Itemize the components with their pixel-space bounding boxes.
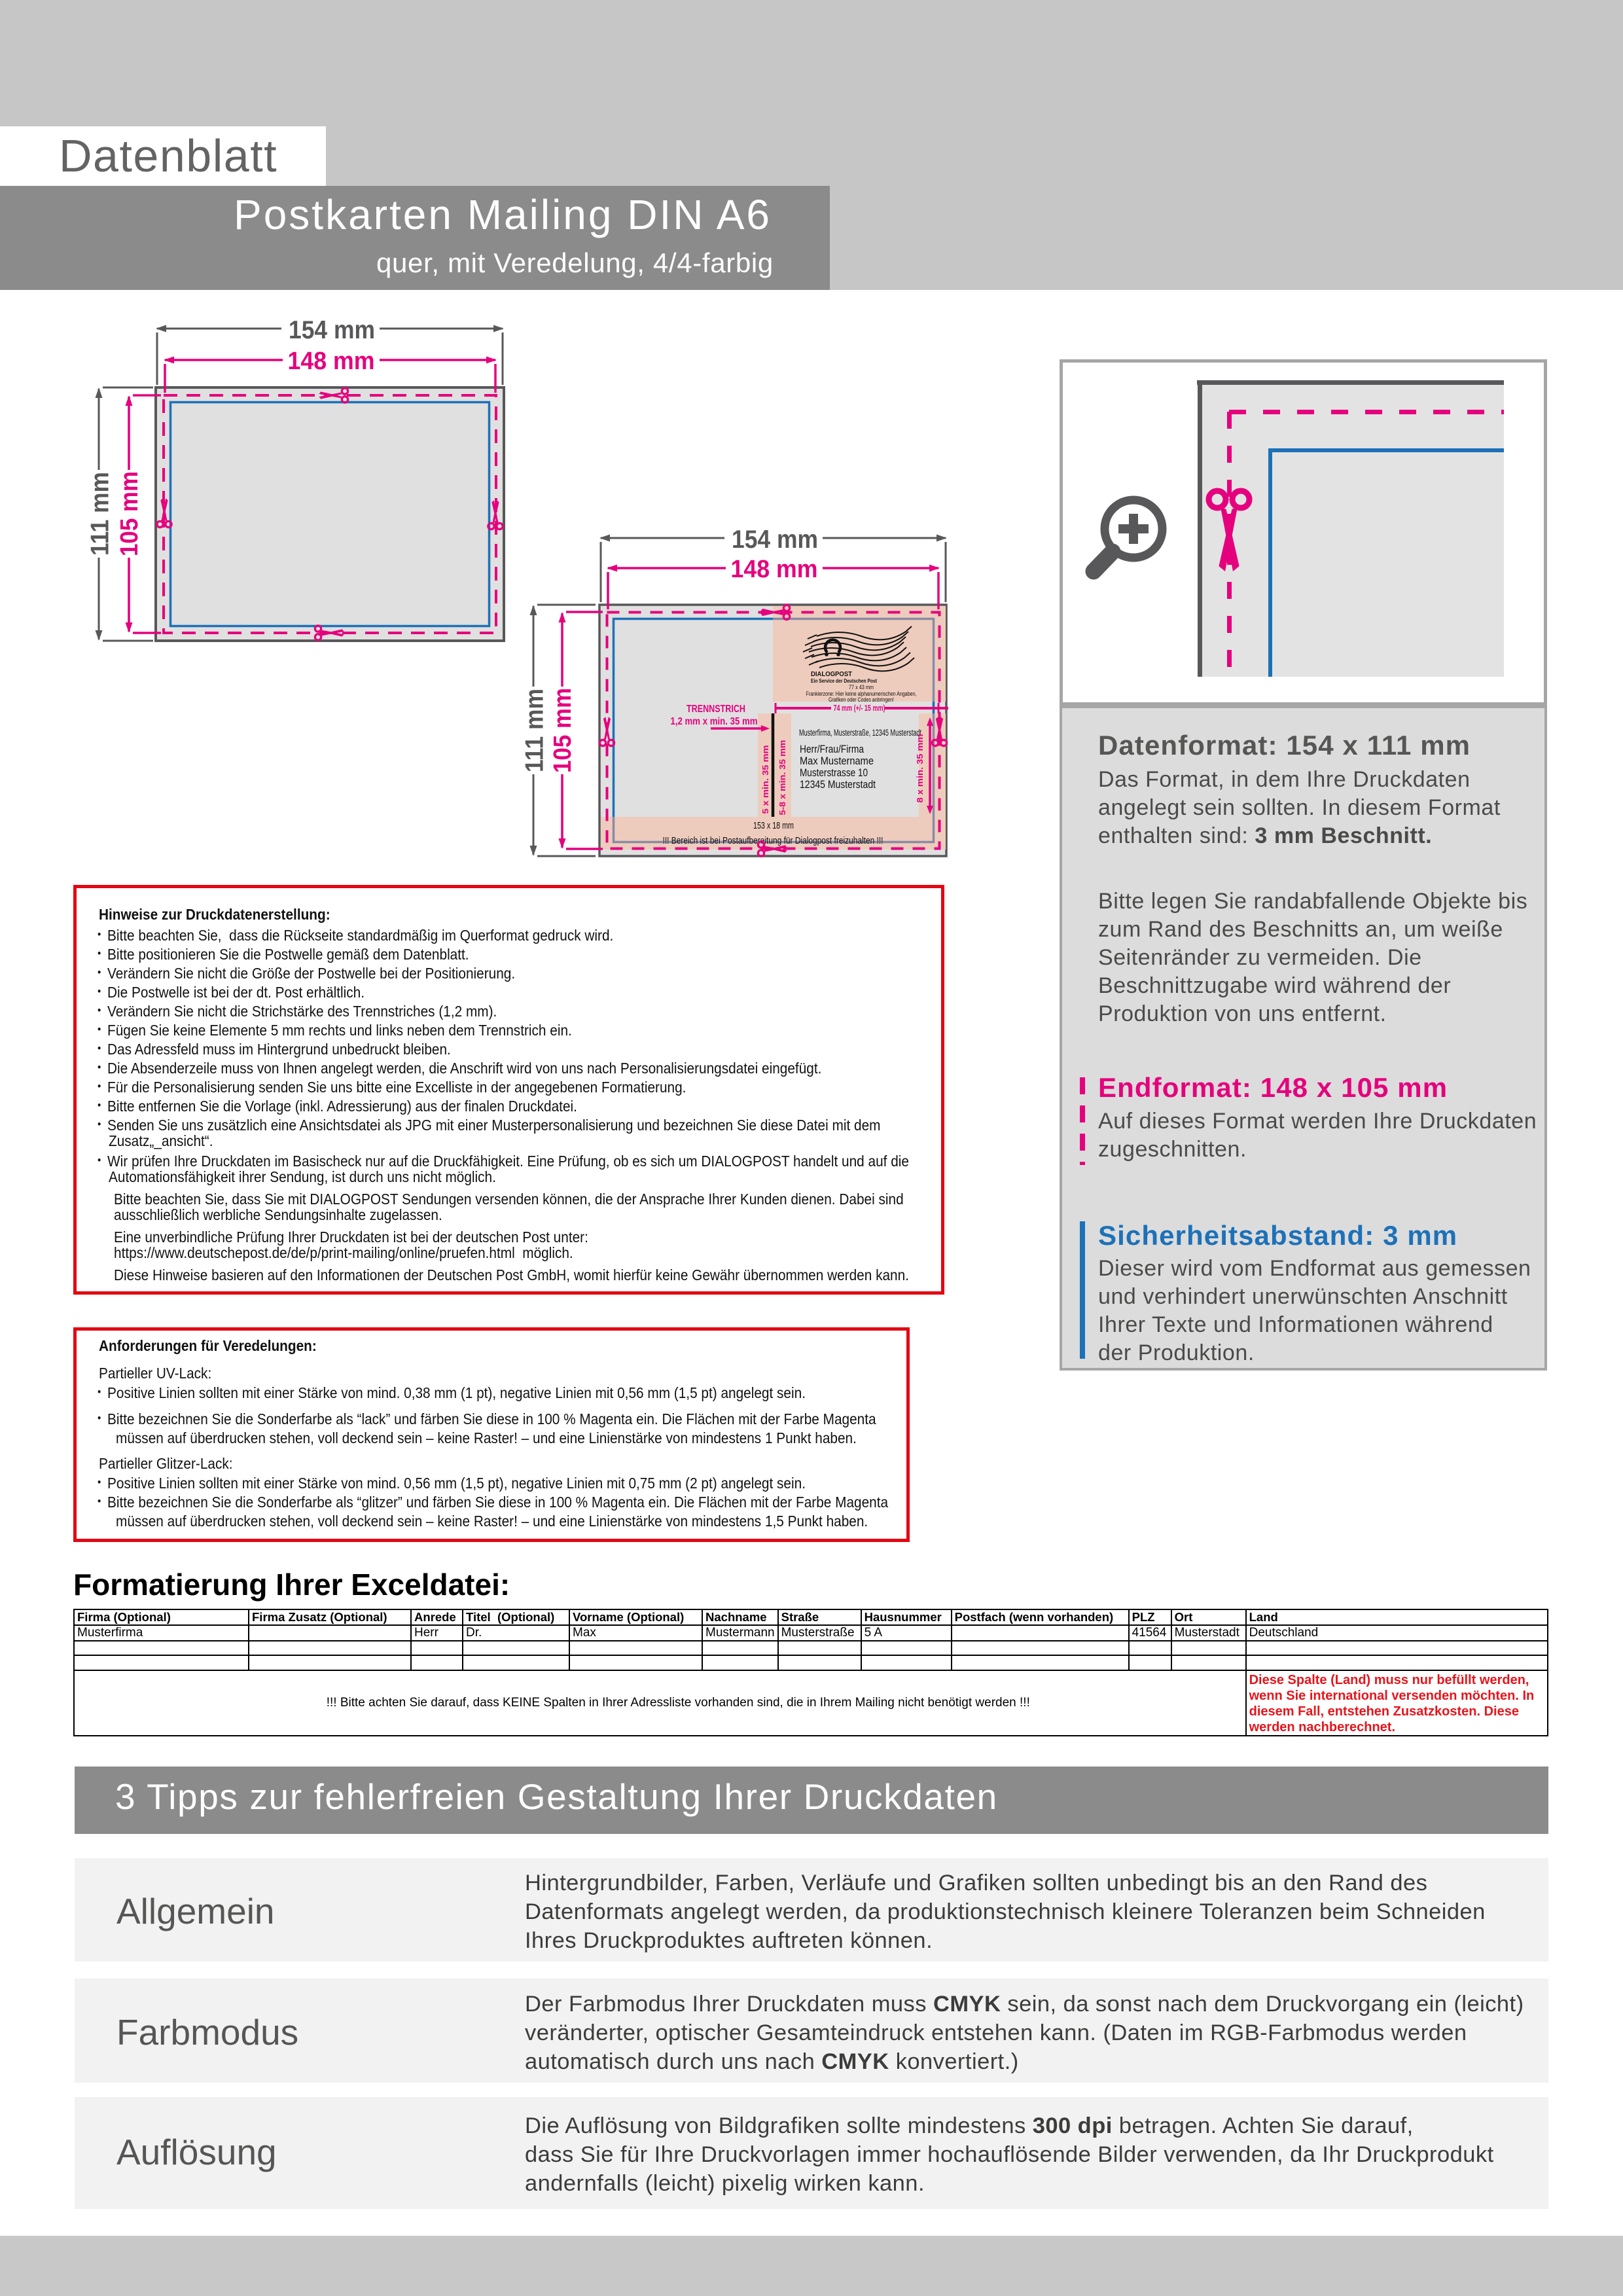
svg-text:74 mm (+/- 15 mm): 74 mm (+/- 15 mm) <box>834 704 885 713</box>
svg-text:!!! Bereich ist bei Postaufber: !!! Bereich ist bei Postaufbereitung für… <box>663 836 883 846</box>
svg-text:Musterfirma, Musterstraße, 123: Musterfirma, Musterstraße, 12345 Musters… <box>799 728 921 738</box>
svg-text:1,2 mm x min. 35 mm: 1,2 mm x min. 35 mm <box>671 716 758 727</box>
svg-text:Ein Service der Deutschen Post: Ein Service der Deutschen Post <box>811 677 877 684</box>
svg-text:148 mm: 148 mm <box>731 556 818 583</box>
svg-text:Max Mustername: Max Mustername <box>800 755 874 767</box>
svg-text:154 mm: 154 mm <box>732 526 818 554</box>
svg-text:8 x min. 35 mm: 8 x min. 35 mm <box>916 734 925 803</box>
svg-text:105 mm: 105 mm <box>116 471 143 556</box>
svg-text:111 mm: 111 mm <box>86 472 115 556</box>
svg-text:5-8 x min. 35 mm: 5-8 x min. 35 mm <box>778 740 787 816</box>
svg-text:77 x 43 mm: 77 x 43 mm <box>849 684 874 691</box>
svg-text:154 mm: 154 mm <box>289 316 375 344</box>
svg-text:Herr/Frau/Firma: Herr/Frau/Firma <box>800 743 864 755</box>
svg-text:153 x 18 mm: 153 x 18 mm <box>753 821 794 831</box>
svg-text:148 mm: 148 mm <box>288 348 375 375</box>
svg-text:105 mm: 105 mm <box>549 688 577 773</box>
svg-text:5 x min. 35 mm: 5 x min. 35 mm <box>761 745 770 814</box>
svg-text:Musterstrasse 10: Musterstrasse 10 <box>800 766 868 779</box>
svg-text:Grafiken oder Codes anbringen!: Grafiken oder Codes anbringen! <box>829 696 894 703</box>
svg-text:111 mm: 111 mm <box>521 689 549 772</box>
svg-text:TRENNSTRICH: TRENNSTRICH <box>687 704 745 715</box>
svg-text:12345 Musterstadt: 12345 Musterstadt <box>800 778 876 791</box>
